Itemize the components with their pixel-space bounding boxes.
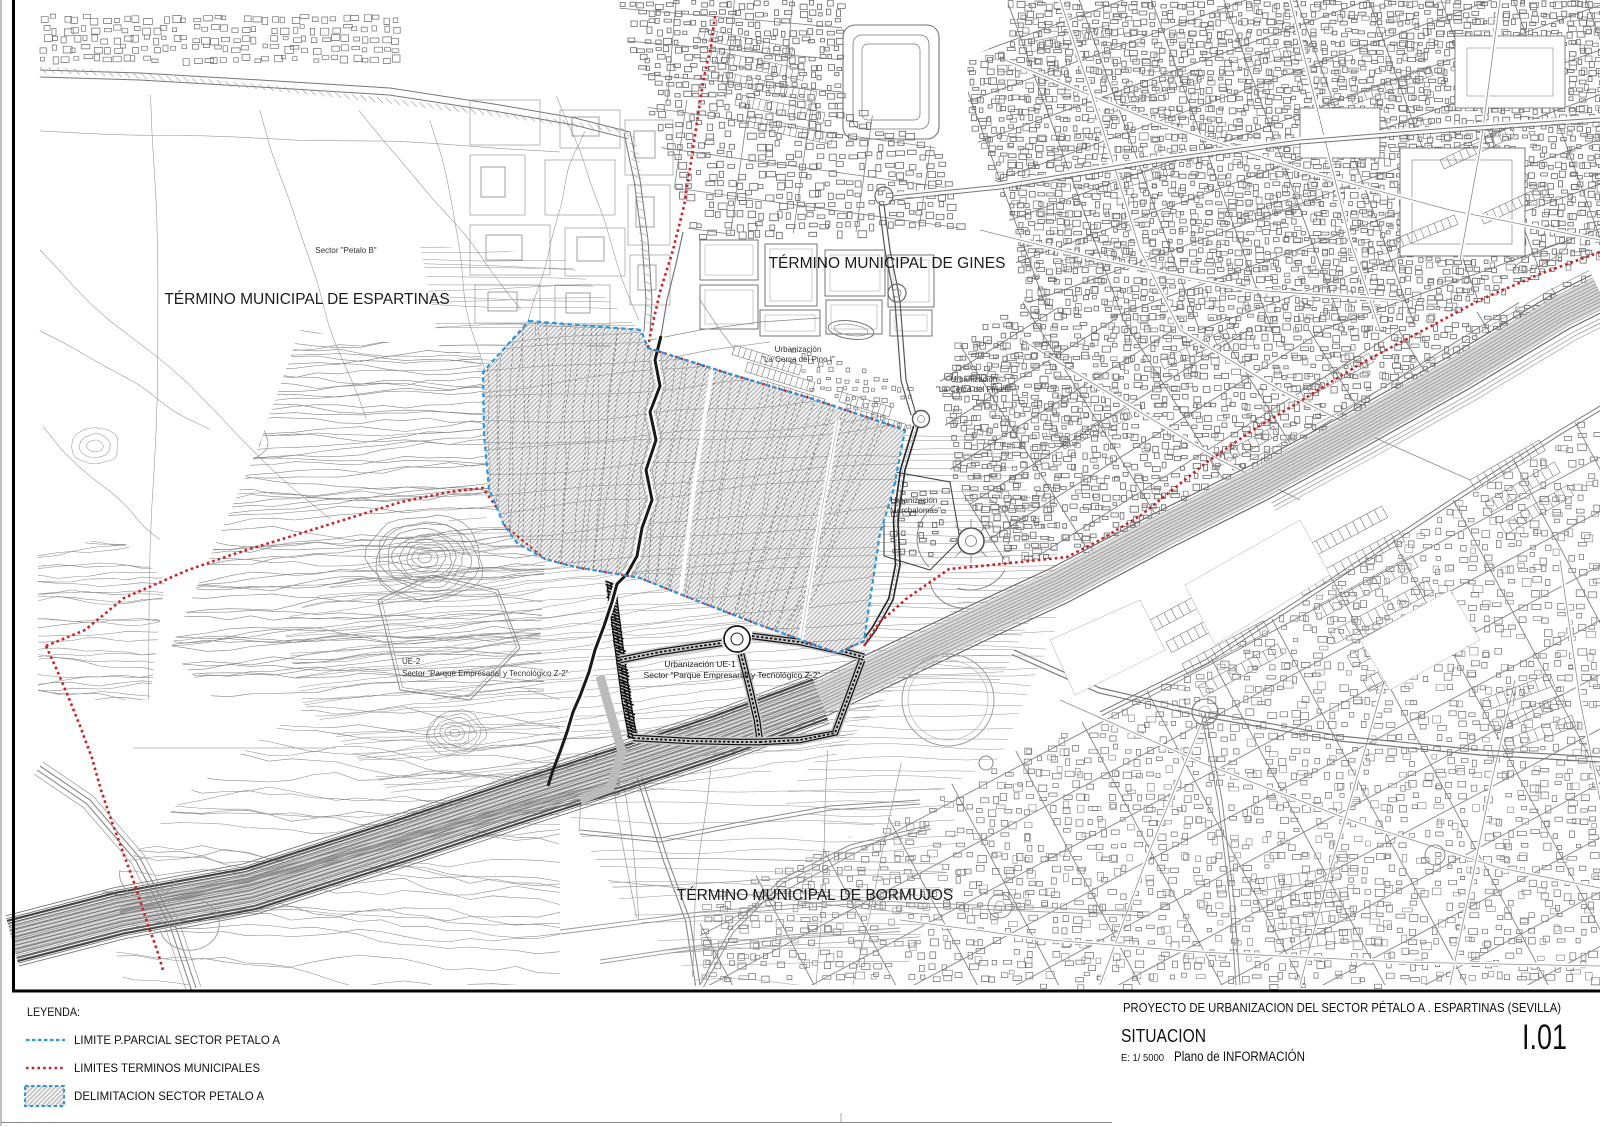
- svg-text:LEYENDA:: LEYENDA:: [27, 1005, 80, 1019]
- svg-text:SITUACION: SITUACION: [1121, 1025, 1206, 1046]
- svg-text:Sector "Parque Empresarial y T: Sector "Parque Empresarial y Tecnológico…: [644, 670, 821, 680]
- svg-text:I.01: I.01: [1522, 1018, 1567, 1057]
- svg-text:Urbanización: Urbanización: [951, 375, 998, 384]
- svg-text:"La Cerca del Pino I": "La Cerca del Pino I": [761, 355, 835, 364]
- svg-text:PROYECTO DE URBANIZACION DEL: PROYECTO DE URBANIZACION DEL SECTOR PÉTA…: [1123, 1000, 1561, 1015]
- svg-text:"La Cerca del Pino II": "La Cerca del Pino II": [936, 385, 1012, 394]
- svg-text:LIMITES TERMINOS MUNICIPALES: LIMITES TERMINOS MUNICIPALES: [74, 1063, 260, 1075]
- svg-text:"Marchalomas": "Marchalomas": [887, 506, 941, 515]
- svg-text:Sector "Parque Empresarial y T: Sector "Parque Empresarial y Tecnológico…: [402, 669, 569, 678]
- svg-text:Urbanización: Urbanización: [775, 345, 822, 354]
- svg-text:Urbanización UE-1: Urbanización UE-1: [664, 659, 736, 669]
- svg-text:TÉRMINO MUNICIPAL DE BORMUJOS: TÉRMINO MUNICIPAL DE BORMUJOS: [677, 887, 953, 904]
- svg-text:Urbanización: Urbanización: [891, 496, 938, 505]
- svg-text:E: 1/ 5000: E: 1/ 5000: [1121, 1052, 1164, 1064]
- svg-text:LIMITE P.PARCIAL SECTOR PETALO: LIMITE P.PARCIAL SECTOR PETALO A: [74, 1035, 280, 1047]
- svg-text:TÉRMINO MUNICIPAL DE ESPARTINA: TÉRMINO MUNICIPAL DE ESPARTINAS: [164, 291, 449, 308]
- svg-text:Sector "Petalo B": Sector "Petalo B": [315, 246, 376, 255]
- svg-text:DELIMITACION SECTOR PETALO A: DELIMITACION SECTOR PETALO A: [74, 1091, 264, 1103]
- svg-text:Plano de INFORMACIÓN: Plano de INFORMACIÓN: [1174, 1049, 1305, 1064]
- svg-text:UE-2: UE-2: [402, 657, 421, 666]
- svg-text:TÉRMINO MUNICIPAL DE GINES: TÉRMINO MUNICIPAL DE GINES: [769, 255, 1006, 272]
